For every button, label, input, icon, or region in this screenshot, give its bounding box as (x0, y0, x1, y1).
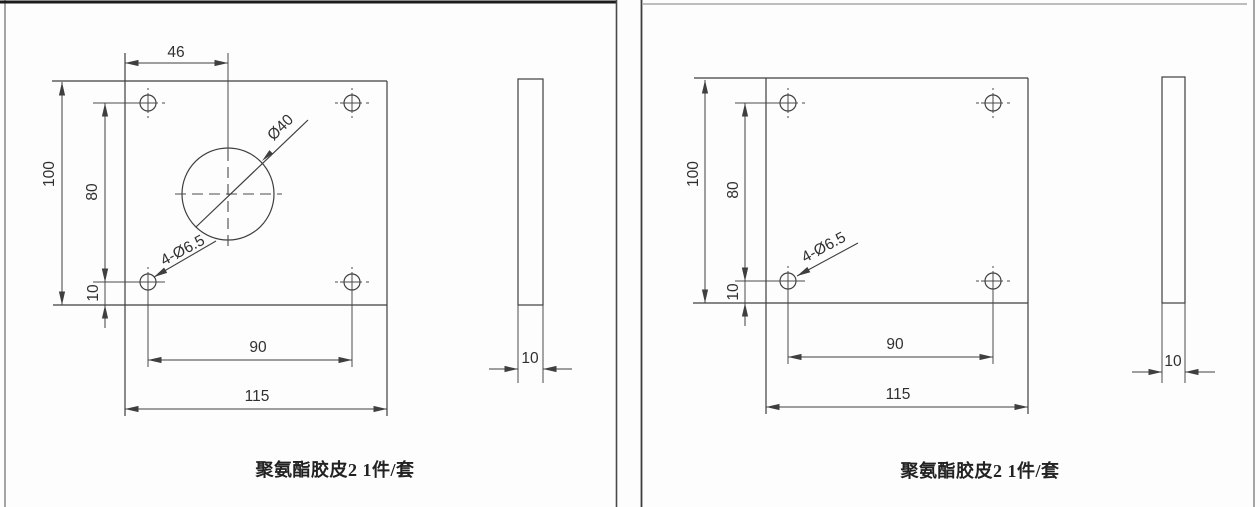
part-caption: 聚氨酯胶皮2 1件/套 (899, 460, 1059, 481)
corner-hole-label: 4-Ø6.5 (799, 229, 849, 266)
dim-label-90: 90 (886, 336, 904, 353)
thickness-label: 10 (521, 350, 539, 367)
dim-label-46: 46 (167, 44, 184, 61)
side-view-outline (518, 79, 543, 305)
dim-label-10: 10 (85, 284, 102, 302)
dimensions: 100 80 10 90 115 4-Ø6.5 (685, 80, 1028, 407)
dim-label-115: 115 (886, 386, 911, 403)
right-front-view: 100 80 10 90 115 4-Ø6.5 (685, 78, 1028, 414)
left-page: Ø40 46 100 80 (0, 0, 617, 507)
diameter-leader-line (196, 120, 308, 227)
extension-lines (93, 103, 352, 367)
dim-label-115: 115 (245, 388, 270, 405)
plate-outline (52, 53, 387, 416)
engineering-drawing-svg: Ø40 46 100 80 (0, 0, 1260, 507)
dim-label-90: 90 (249, 339, 267, 356)
left-side-view: 10 (489, 79, 572, 383)
dim-label-100: 100 (685, 161, 702, 187)
right-side-view: 10 (1132, 77, 1215, 383)
dim-label-80: 80 (84, 183, 101, 201)
scanned-drawing-sheet: Ø40 46 100 80 (0, 0, 1260, 507)
dim-label-100: 100 (41, 161, 58, 187)
part-caption: 聚氨酯胶皮2 1件/套 (254, 459, 414, 480)
side-view-extension-lines (518, 305, 543, 383)
dim-label-80: 80 (725, 181, 742, 199)
hole-mark-cross (335, 88, 369, 118)
thickness-label: 10 (1164, 353, 1182, 370)
hole-mark-cross (976, 88, 1010, 118)
dim-label-10: 10 (725, 283, 742, 301)
side-view-outline (1162, 77, 1185, 303)
right-page: 100 80 10 90 115 4-Ø6.5 10 (642, 0, 1255, 507)
corner-hole-label: 4-Ø6.5 (158, 232, 208, 269)
center-hole-diameter-label: Ø40 (264, 111, 297, 144)
extension-lines (735, 103, 993, 364)
center-hole: Ø40 (175, 53, 308, 252)
plate-outline (693, 78, 1028, 414)
dimensions: 46 100 80 10 90 115 4-Ø6.5 (41, 44, 387, 409)
side-view-extension-lines (1162, 303, 1185, 383)
left-front-view: Ø40 46 100 80 (41, 44, 387, 416)
